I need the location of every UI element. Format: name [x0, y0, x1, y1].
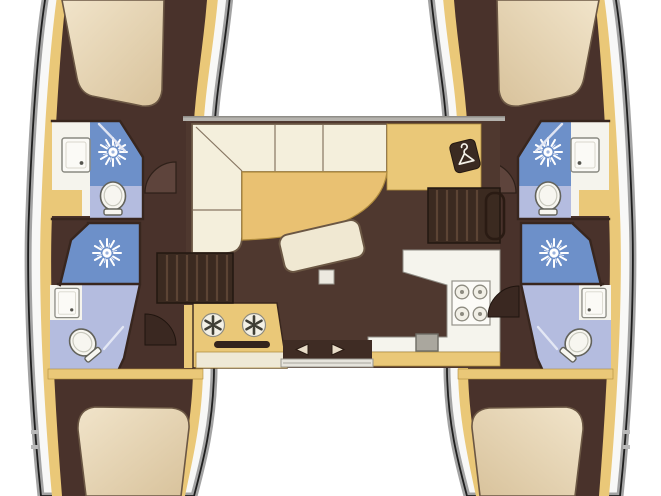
saloon — [145, 116, 519, 368]
galley-unit — [184, 303, 287, 368]
port-companionway-steps — [157, 253, 233, 303]
floor-plan-canvas — [0, 0, 661, 496]
galley-front — [196, 352, 287, 368]
saloon-front-window-line-dark — [183, 116, 505, 118]
sliding-door — [281, 340, 373, 367]
catamaran-floor-plan — [0, 0, 661, 496]
stove — [452, 281, 490, 325]
aft-counter-trim — [365, 352, 500, 366]
counter-sink — [416, 334, 438, 351]
table-pedestal — [319, 270, 334, 284]
oven-slot — [214, 341, 270, 348]
galley-side-strip — [184, 305, 193, 368]
starboard-companionway-steps — [428, 188, 504, 243]
